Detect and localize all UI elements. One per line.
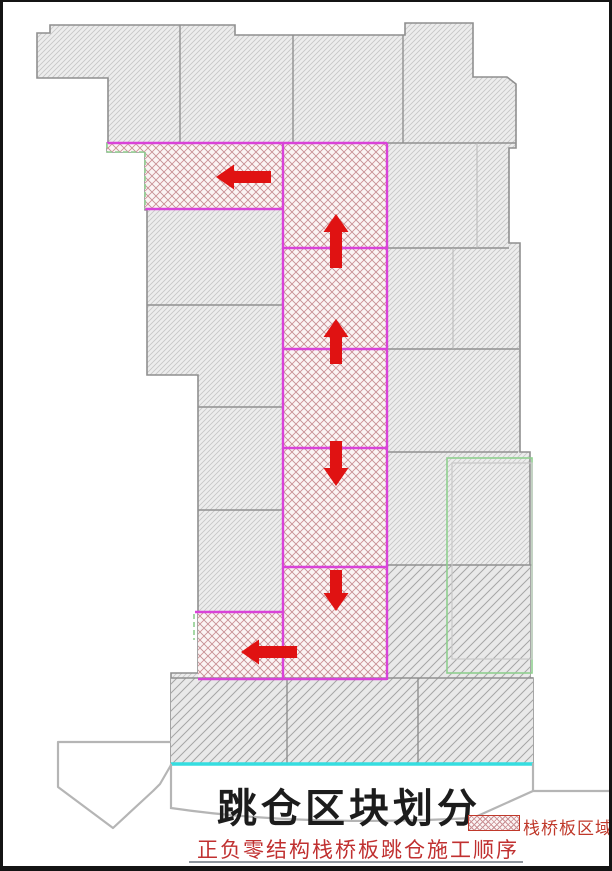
legend-label: 栈桥板区域 (523, 814, 612, 839)
plan-caption: 正负零结构栈桥板跳仓施工顺序 (188, 834, 528, 864)
bottom-band-coarse-hatch (171, 678, 533, 763)
floor-plan (0, 0, 612, 871)
caption-underline (189, 861, 523, 863)
bottom-right-block-coarse-hatch (387, 565, 530, 678)
plan-title: 跳仓区块划分 (203, 776, 495, 834)
trestle-arm-northwest-ledge (107, 143, 145, 152)
drawing-frame: 跳仓区块划分 栈桥板区域 正负零结构栈桥板跳仓施工顺序 (0, 0, 612, 871)
ramp-outline (58, 742, 171, 828)
trestle-area-legend-swatch (468, 815, 520, 831)
